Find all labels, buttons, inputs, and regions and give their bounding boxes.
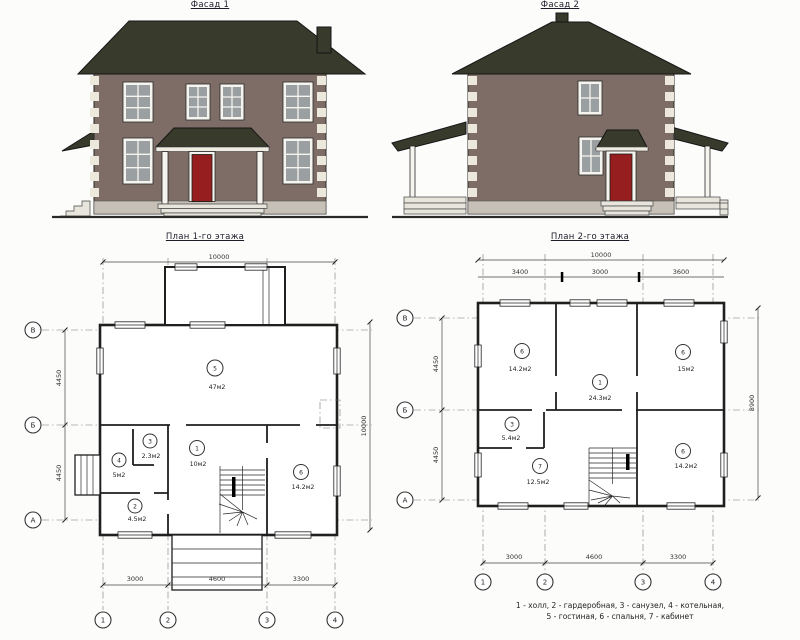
plan2-title: План 2-го этажа [420,232,760,242]
facade1-window [283,138,313,184]
svg-text:3000: 3000 [127,575,144,583]
facade2-left-porch-steps [404,197,466,214]
facade1-porch-roof [156,128,269,147]
plan1-dim-top: 10000 [101,253,338,265]
svg-text:14.2м2: 14.2м2 [675,463,698,470]
svg-text:3300: 3300 [293,575,310,583]
legend-line-1: 1 - холл, 2 - гардеробная, 3 - санузел, … [460,601,780,612]
svg-text:1: 1 [101,617,105,625]
svg-text:4: 4 [333,617,338,625]
svg-text:3600: 3600 [673,268,690,276]
svg-text:12.5м2: 12.5м2 [527,479,550,486]
facade1-porch-fascia [156,147,269,152]
facade2-title: Фасад 2 [390,0,730,10]
facade1-window [123,138,153,184]
svg-text:6: 6 [299,469,303,476]
svg-text:2.3м2: 2.3м2 [142,453,161,460]
svg-text:Б: Б [31,422,36,430]
svg-text:4450: 4450 [55,370,63,387]
svg-text:4600: 4600 [586,553,603,561]
svg-text:1: 1 [481,579,485,587]
facade1-porch-steps [158,204,267,216]
plan1-vestibule [165,267,285,325]
svg-text:24.3м2: 24.3м2 [589,395,612,402]
svg-text:А: А [31,517,36,525]
svg-text:5: 5 [213,365,217,372]
svg-text:В: В [31,327,36,335]
svg-text:3000: 3000 [506,553,523,561]
plan2-dim-bottom: 3000 4600 3300 [481,553,716,566]
svg-text:4450: 4450 [432,447,440,464]
plan2-outer-wall [478,303,724,506]
plan1-grid-column-bubbles: 1 2 3 4 [95,612,343,628]
facade2-left-porch-post [410,146,415,201]
plan1-dim-right: 10000 [360,320,373,533]
svg-text:3300: 3300 [670,553,687,561]
room-legend: 1 - холл, 2 - гардеробная, 3 - санузел, … [460,601,780,623]
facade2-entrance-door [610,154,632,201]
svg-text:3: 3 [265,617,269,625]
facade1-porch-post [257,152,263,205]
svg-text:8900: 8900 [748,395,756,412]
facade1-entrance-door [192,155,212,202]
svg-text:3: 3 [641,579,645,587]
plan2-dim-top-segments: 3400 3000 3600 [478,268,724,282]
facade2-awning-fascia [596,147,648,151]
svg-text:3000: 3000 [592,268,609,276]
facade1-chimney [317,27,331,53]
facade1-window [220,84,244,120]
facade2-left-porch [392,122,466,214]
svg-text:4450: 4450 [55,465,63,482]
svg-text:7: 7 [538,463,542,470]
svg-text:5.4м2: 5.4м2 [502,435,521,442]
plan2-stairs-wall-stub [626,454,630,470]
facade2-left-porch-roof [392,122,466,151]
svg-text:В: В [403,315,408,323]
svg-text:4.5м2: 4.5м2 [128,516,147,523]
plan2-second-floor-plan: 10000 3400 3000 3600 [392,248,796,638]
facade1-window [283,82,313,122]
svg-text:5м2: 5м2 [113,472,126,479]
facade1-left-steps [60,201,90,216]
facade2-side-elevation [390,10,730,222]
facade2-right-porch-post [705,146,710,199]
svg-text:3: 3 [510,421,514,428]
svg-text:1: 1 [195,445,199,452]
svg-text:2: 2 [133,503,137,510]
svg-text:10000: 10000 [209,253,230,261]
plan2-dim-right: 8900 [748,306,761,501]
svg-text:3: 3 [148,438,152,445]
svg-text:10м2: 10м2 [190,461,207,468]
plan2-grid-column-bubbles: 1 2 3 4 [475,574,721,590]
plan1-first-floor-plan: 10000 [20,248,395,638]
svg-text:47м2: 47м2 [209,384,226,391]
facade2-window [578,81,602,115]
facade2-roof [452,22,691,74]
svg-text:10000: 10000 [591,251,612,259]
plan2-grid-row-bubbles: В Б А [397,310,413,508]
svg-text:2: 2 [543,579,547,587]
facade1-side-awning [62,131,94,151]
facade1-porch-post [162,152,168,205]
svg-text:4: 4 [117,457,121,464]
plan2-dim-left: 4450 4450 [432,316,445,503]
architectural-drawing-sheet: Фасад 1 Фасад 2 [0,0,800,640]
plan1-grid-row-bubbles: В Б А [25,322,41,528]
svg-text:10000: 10000 [360,416,368,437]
svg-text:6: 6 [681,448,685,455]
svg-text:4: 4 [711,579,716,587]
svg-text:6: 6 [681,349,685,356]
facade1-title: Фасад 1 [50,0,370,10]
svg-text:4600: 4600 [209,575,226,583]
svg-text:3400: 3400 [512,268,529,276]
facade2-door-steps [601,201,653,215]
svg-text:6: 6 [520,348,524,355]
plan1-title: План 1-го этажа [35,232,375,242]
svg-text:Б: Б [403,407,408,415]
facade2-right-porch-steps [676,197,728,215]
svg-text:А: А [403,497,408,505]
svg-text:14.2м2: 14.2м2 [509,366,532,373]
facade1-window [186,84,210,120]
plan2-dim-top-total: 10000 [476,251,727,263]
svg-text:14.2м2: 14.2м2 [292,484,315,491]
svg-text:15м2: 15м2 [678,366,695,373]
svg-text:2: 2 [166,617,170,625]
svg-text:4450: 4450 [432,356,440,373]
legend-line-2: 5 - гостиная, 6 - спальня, 7 - кабинет [460,612,780,623]
facade1-front-elevation [50,10,370,222]
svg-text:1: 1 [598,379,602,386]
plan1-stairs-wall-stub [232,477,236,497]
plan1-left-bay [75,455,100,495]
facade1-window [123,82,153,122]
